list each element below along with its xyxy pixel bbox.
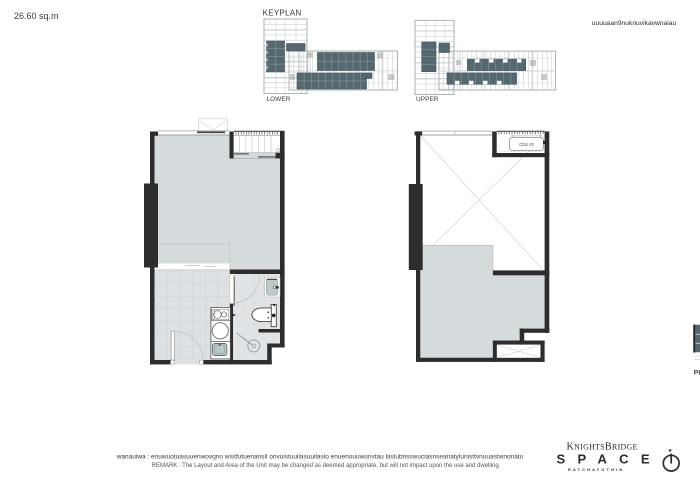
svg-text:26.60 sq.m: 26.60 sq.m (14, 11, 59, 21)
svg-text:wanauiwa : enuwuotuasuuenwovqn: wanauiwa : enuwuotuasuuenwovqno wistfutu… (116, 454, 524, 461)
svg-text:PL: PL (694, 370, 700, 377)
svg-text:uuuuaan9nuknuvikavwnaiau: uuuuaan9nuknuvikavwnaiau (592, 20, 677, 27)
svg-text:SPACE: SPACE (557, 452, 662, 467)
svg-text:KEYPLAN: KEYPLAN (263, 9, 302, 18)
svg-text:REMARK : The Layout and Area: REMARK : The Layout and Area of the Unit… (152, 463, 501, 469)
svg-text:UPPER: UPPER (416, 96, 439, 103)
svg-text:LOWER: LOWER (267, 96, 291, 103)
svg-text:CDU #2: CDU #2 (519, 142, 534, 147)
svg-text:RATCHAYOTHIN: RATCHAYOTHIN (568, 467, 624, 472)
